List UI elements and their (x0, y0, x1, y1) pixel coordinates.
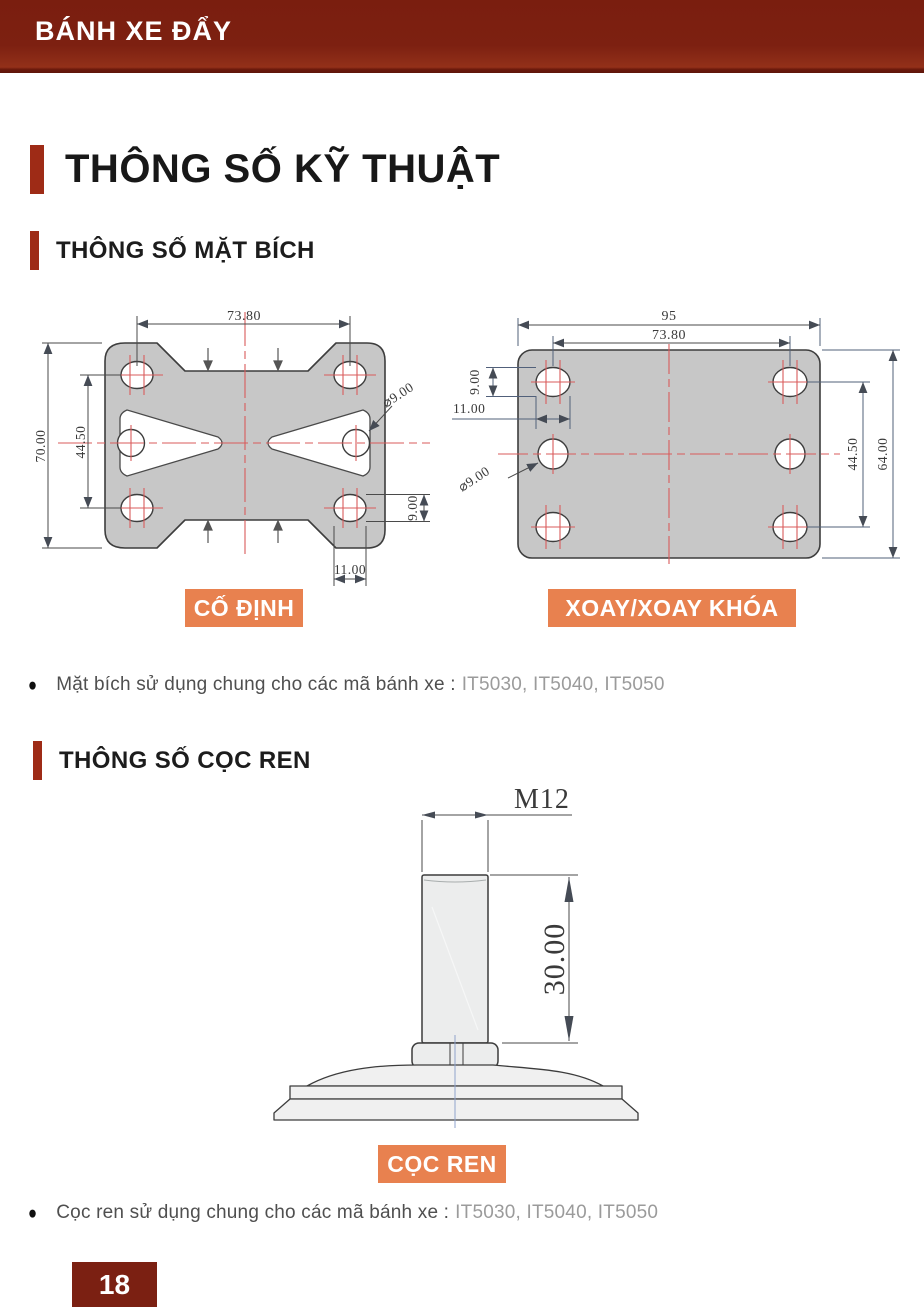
flange-heading-row: THÔNG SỐ MẶT BÍCH (30, 231, 315, 270)
fixed-label-badge: CỐ ĐỊNH (185, 589, 303, 627)
flange-heading: THÔNG SỐ MẶT BÍCH (56, 237, 315, 265)
accent-bar-small (33, 741, 42, 780)
dim-thread: M12 (514, 784, 570, 815)
dim-length: 30.00 (538, 923, 571, 996)
stem-label-badge: CỌC REN (378, 1145, 506, 1183)
stem-drawing: M12 30.00 (262, 782, 662, 1142)
swivel-plate-drawing: 95 73.80 9.00 11.00 ⌀9.00 44.50 64.00 (450, 296, 920, 588)
bullet-icon: ● (28, 675, 37, 696)
brand-title: BÁNH XE ĐẨY (35, 16, 232, 57)
base-band (290, 1086, 622, 1099)
dim-slot-height: 9.00 (405, 495, 420, 521)
dim-slot-width: 11.00 (334, 562, 366, 577)
dim-bolt-span-x: 73.80 (227, 309, 261, 324)
accent-bar-small (30, 231, 39, 270)
page-header: BÁNH XE ĐẨY (0, 0, 924, 73)
dim-plate-height: 64.00 (875, 438, 890, 471)
dim-plate-height: 70.00 (33, 430, 48, 463)
main-title-row: THÔNG SỐ KỸ THUẬT (30, 145, 500, 194)
stem-note-codes: IT5030, IT5040, IT5050 (455, 1202, 658, 1224)
base-skirt (274, 1099, 638, 1120)
dim-bolt-span-y: 44.50 (845, 438, 860, 471)
stem-heading: THÔNG SỐ CỌC REN (59, 747, 311, 775)
dim-plate-width: 95 (662, 309, 677, 324)
catalog-page: BÁNH XE ĐẨY THÔNG SỐ KỸ THUẬT THÔNG SỐ M… (0, 0, 924, 1307)
dim-bolt-span-y: 44.50 (73, 426, 88, 459)
page-title: THÔNG SỐ KỸ THUẬT (65, 147, 500, 192)
stem-shaft (422, 875, 488, 1043)
dim-bolt-span-x: 73.80 (652, 328, 686, 343)
flange-note-codes: IT5030, IT5040, IT5050 (462, 674, 665, 696)
stem-length-dimension: 30.00 (490, 875, 578, 1043)
swivel-label-badge: XOAY/XOAY KHÓA (548, 589, 796, 627)
dim-slot-height: 9.00 (467, 369, 482, 395)
stem-note: ● Cọc ren sử dụng chung cho các mã bánh … (28, 1202, 658, 1224)
flange-note: ● Mặt bích sử dụng chung cho các mã bánh… (28, 674, 665, 696)
accent-bar-large (30, 145, 44, 194)
flange-note-text: Mặt bích sử dụng chung cho các mã bánh x… (56, 674, 455, 696)
dim-slot-width: 11.00 (453, 401, 485, 416)
page-number-badge: 18 (72, 1262, 157, 1307)
bullet-icon: ● (28, 1203, 37, 1224)
stem-thread-dimension: M12 (422, 784, 572, 872)
dim-hole-dia: ⌀9.00 (455, 463, 492, 494)
stem-heading-row: THÔNG SỐ CỌC REN (33, 741, 311, 780)
fixed-plate-drawing: 73.80 70.00 44.50 ⌀9.00 9.00 11.00 (30, 296, 450, 588)
stem-note-text: Cọc ren sử dụng chung cho các mã bánh xe… (56, 1202, 449, 1224)
